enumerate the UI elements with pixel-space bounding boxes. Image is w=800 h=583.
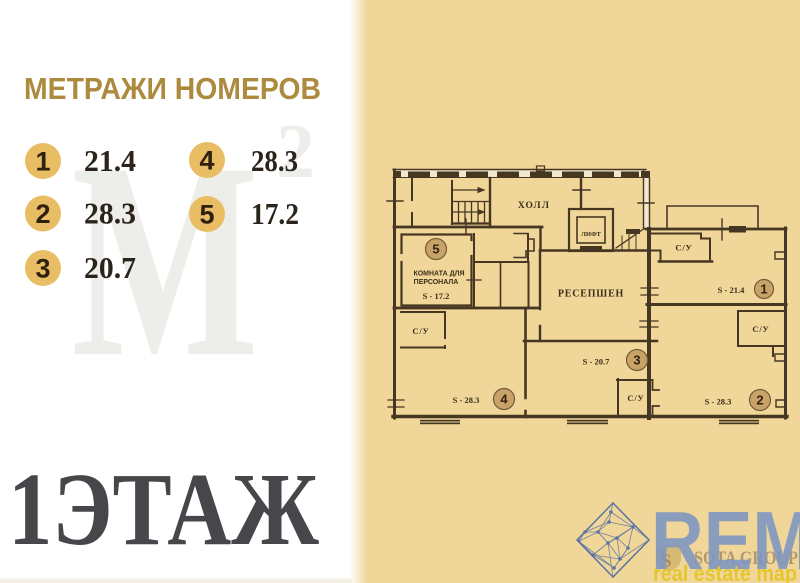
svg-text:28.3: 28.3 xyxy=(251,143,298,178)
svg-text:2: 2 xyxy=(756,393,763,408)
svg-text:ЛИФТ: ЛИФТ xyxy=(581,231,601,238)
svg-text:С/У: С/У xyxy=(627,393,644,403)
svg-text:17.2: 17.2 xyxy=(251,196,299,231)
svg-text:1: 1 xyxy=(35,147,50,177)
svg-text:ХОЛЛ: ХОЛЛ xyxy=(518,201,550,211)
svg-text:4: 4 xyxy=(199,146,214,176)
svg-text:2: 2 xyxy=(35,199,50,229)
svg-text:21.4: 21.4 xyxy=(84,143,136,178)
svg-text:real estate map: real estate map xyxy=(653,561,797,583)
svg-text:МЕТРАЖИ НОМЕРОВ: МЕТРАЖИ НОМЕРОВ xyxy=(24,71,321,106)
svg-text:S - 21.4: S - 21.4 xyxy=(718,285,745,295)
svg-text:3: 3 xyxy=(633,353,640,368)
svg-text:S - 20.7: S - 20.7 xyxy=(583,357,610,367)
svg-text:С/У: С/У xyxy=(412,326,429,336)
svg-text:3: 3 xyxy=(35,254,50,284)
svg-text:S - 28.3: S - 28.3 xyxy=(453,395,480,405)
svg-text:С/У: С/У xyxy=(752,324,769,334)
svg-text:1ЭТАЖ: 1ЭТАЖ xyxy=(8,452,319,567)
svg-text:4: 4 xyxy=(500,392,508,407)
svg-text:ПЕРСОНАЛА: ПЕРСОНАЛА xyxy=(414,279,459,286)
svg-text:S - 28.3: S - 28.3 xyxy=(705,397,732,407)
svg-text:С/У: С/У xyxy=(675,243,692,253)
svg-text:1: 1 xyxy=(760,282,767,297)
svg-text:28.3: 28.3 xyxy=(84,196,136,231)
svg-text:РЕСЕПШЕН: РЕСЕПШЕН xyxy=(558,289,624,300)
svg-text:20.7: 20.7 xyxy=(84,250,136,285)
svg-text:КОМНАТА ДЛЯ: КОМНАТА ДЛЯ xyxy=(413,271,464,278)
svg-text:5: 5 xyxy=(432,242,439,257)
svg-text:S - 17.2: S - 17.2 xyxy=(423,291,450,301)
svg-text:5: 5 xyxy=(199,200,214,230)
